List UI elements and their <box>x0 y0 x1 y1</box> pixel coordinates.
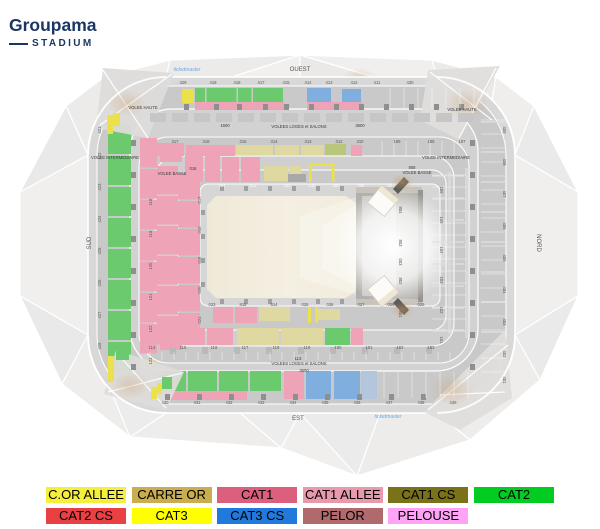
svg-text:003: 003 <box>398 259 403 267</box>
svg-text:317: 317 <box>172 139 180 144</box>
svg-text:023: 023 <box>209 302 217 307</box>
svg-text:VOLEES LOGES et SALONS: VOLEES LOGES et SALONS <box>271 361 326 366</box>
svg-text:404: 404 <box>502 287 507 295</box>
svg-text:310: 310 <box>357 139 365 144</box>
svg-text:EST: EST <box>292 416 304 422</box>
svg-text:802: 802 <box>398 278 403 286</box>
svg-text:401: 401 <box>502 377 507 385</box>
svg-text:150: 150 <box>335 345 343 350</box>
svg-text:151: 151 <box>366 345 374 350</box>
svg-text:415: 415 <box>283 80 291 85</box>
svg-text:OUEST: OUEST <box>290 67 311 73</box>
svg-text:017: 017 <box>197 196 202 204</box>
svg-text:013: 013 <box>250 183 258 188</box>
svg-text:3500: 3500 <box>299 368 309 373</box>
svg-text:808: 808 <box>409 165 417 170</box>
svg-text:426: 426 <box>97 279 102 287</box>
svg-text:3600: 3600 <box>355 123 365 128</box>
svg-text:009: 009 <box>333 183 341 188</box>
svg-text:804: 804 <box>398 207 403 215</box>
svg-text:010: 010 <box>309 183 317 188</box>
svg-text:SUD: SUD <box>87 236 93 249</box>
svg-text:403: 403 <box>502 319 507 327</box>
svg-text:312: 312 <box>336 139 344 144</box>
svg-text:424: 424 <box>97 215 102 223</box>
svg-text:315: 315 <box>240 139 248 144</box>
svg-text:803: 803 <box>398 240 403 248</box>
svg-text:119: 119 <box>148 230 153 237</box>
svg-text:VOLEE BASSE: VOLEE BASSE <box>402 170 431 175</box>
svg-text:021: 021 <box>197 316 202 324</box>
svg-text:116: 116 <box>211 345 218 350</box>
svg-text:152: 152 <box>397 345 405 350</box>
svg-text:120: 120 <box>148 262 153 270</box>
svg-text:VOLEE INTERMEDIAIRE: VOLEE INTERMEDIAIRE <box>91 155 139 160</box>
svg-text:1600: 1600 <box>220 123 230 128</box>
svg-text:VOLEES LOGES et SALONS: VOLEES LOGES et SALONS <box>271 124 326 129</box>
svg-text:ticketmaster: ticketmaster <box>375 414 402 420</box>
svg-text:815: 815 <box>240 302 248 307</box>
svg-text:801: 801 <box>398 311 403 319</box>
svg-text:433: 433 <box>258 400 266 405</box>
svg-text:018: 018 <box>197 226 202 234</box>
svg-text:VOLEE HAUTE: VOLEE HAUTE <box>128 105 158 110</box>
svg-text:025: 025 <box>302 302 310 307</box>
svg-text:121: 121 <box>148 293 153 301</box>
svg-text:119: 119 <box>304 345 311 350</box>
svg-text:405: 405 <box>502 255 507 263</box>
svg-text:187: 187 <box>459 139 467 144</box>
svg-text:409: 409 <box>502 127 507 135</box>
svg-text:431: 431 <box>194 400 202 405</box>
svg-text:027: 027 <box>358 302 366 307</box>
svg-text:430: 430 <box>407 80 415 85</box>
svg-text:122: 122 <box>148 325 153 333</box>
svg-text:029: 029 <box>418 302 426 307</box>
svg-text:016: 016 <box>190 166 198 171</box>
svg-text:421: 421 <box>97 126 102 134</box>
svg-text:313: 313 <box>305 139 313 144</box>
svg-text:318: 318 <box>203 139 211 144</box>
svg-text:VOLEE INTERMEDIAIRE: VOLEE INTERMEDIAIRE <box>422 155 470 160</box>
svg-text:007: 007 <box>388 183 396 188</box>
svg-text:118: 118 <box>148 198 153 205</box>
svg-text:008: 008 <box>358 183 366 188</box>
svg-text:814: 814 <box>271 302 279 307</box>
svg-text:117: 117 <box>242 345 249 350</box>
svg-text:118: 118 <box>273 345 280 350</box>
svg-text:408: 408 <box>502 159 507 167</box>
svg-text:188: 188 <box>428 139 436 144</box>
svg-text:414: 414 <box>305 80 313 85</box>
svg-text:028: 028 <box>388 302 396 307</box>
svg-text:427: 427 <box>97 311 102 319</box>
svg-text:314: 314 <box>271 139 279 144</box>
svg-text:153: 153 <box>428 345 436 350</box>
svg-text:412: 412 <box>351 80 359 85</box>
svg-text:105: 105 <box>439 217 444 225</box>
svg-text:102: 102 <box>439 307 444 315</box>
svg-text:ticketmaster: ticketmaster <box>174 67 201 73</box>
svg-text:432: 432 <box>226 400 234 405</box>
svg-text:104: 104 <box>439 247 444 255</box>
svg-text:434: 434 <box>290 400 298 405</box>
svg-text:419: 419 <box>210 80 218 85</box>
svg-text:402: 402 <box>502 351 507 359</box>
svg-text:411: 411 <box>374 80 381 85</box>
svg-text:438: 438 <box>418 400 426 405</box>
svg-text:189: 189 <box>394 139 402 144</box>
svg-text:436: 436 <box>354 400 362 405</box>
svg-text:428: 428 <box>97 342 102 350</box>
svg-text:019: 019 <box>197 256 202 264</box>
svg-text:VOLEE HAUTE: VOLEE HAUTE <box>447 107 477 112</box>
svg-text:NORD: NORD <box>535 234 541 252</box>
svg-text:114: 114 <box>149 345 156 350</box>
svg-text:VOLEE BASSE: VOLEE BASSE <box>157 171 186 176</box>
svg-text:406: 406 <box>502 223 507 231</box>
svg-text:439: 439 <box>450 400 458 405</box>
svg-text:013: 013 <box>284 183 292 188</box>
svg-text:429: 429 <box>180 80 188 85</box>
svg-text:036: 036 <box>327 302 335 307</box>
svg-text:101: 101 <box>439 337 444 345</box>
svg-text:413: 413 <box>326 80 334 85</box>
svg-text:115: 115 <box>180 345 187 350</box>
svg-text:123: 123 <box>148 357 153 365</box>
svg-text:106: 106 <box>439 187 444 195</box>
svg-text:103: 103 <box>439 277 444 285</box>
svg-text:437: 437 <box>386 400 394 405</box>
svg-text:435: 435 <box>322 400 330 405</box>
svg-text:417: 417 <box>258 80 266 85</box>
svg-text:407: 407 <box>502 191 507 199</box>
svg-text:430: 430 <box>162 400 170 405</box>
svg-text:425: 425 <box>97 247 102 255</box>
svg-text:423: 423 <box>97 183 102 191</box>
svg-text:064: 064 <box>219 183 227 188</box>
svg-text:418: 418 <box>234 80 242 85</box>
svg-text:020: 020 <box>197 286 202 294</box>
